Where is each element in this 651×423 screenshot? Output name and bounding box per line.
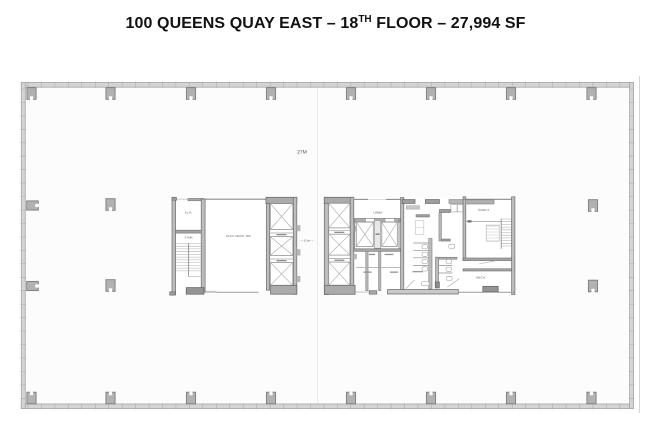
svg-text:EL.R.: EL.R. <box>185 211 193 215</box>
svg-text:STAIR: STAIR <box>184 235 192 239</box>
svg-text:27M: 27M <box>297 150 307 156</box>
svg-text:ELEV. MACH. RM: ELEV. MACH. RM <box>226 234 251 238</box>
svg-text:MECH.: MECH. <box>476 276 486 280</box>
svg-text:— 9.1m —: — 9.1m — <box>300 238 314 242</box>
svg-text:LOBBY: LOBBY <box>373 211 382 215</box>
svg-text:STAIR 2: STAIR 2 <box>478 208 489 212</box>
